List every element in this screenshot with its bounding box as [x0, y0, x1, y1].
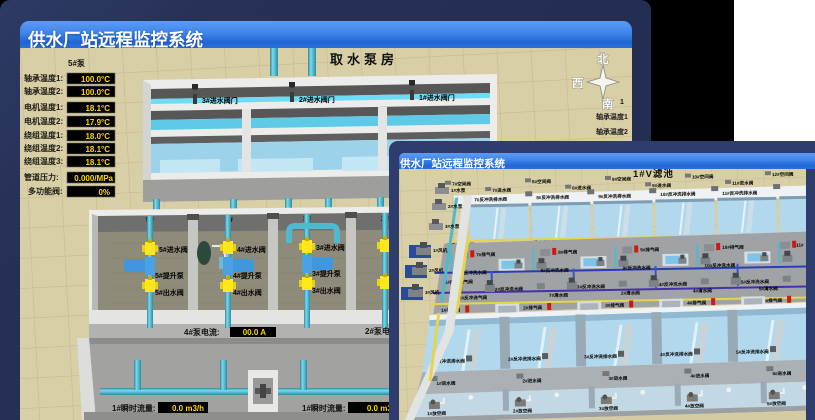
svg-text:电机温度1:: 电机温度1:	[24, 102, 63, 112]
svg-text:5#泵: 5#泵	[68, 59, 85, 68]
svg-text:100.0°C: 100.0°C	[81, 88, 110, 97]
svg-text:3#进水阀: 3#进水阀	[316, 243, 345, 252]
svg-text:管道压力:: 管道压力:	[24, 172, 59, 182]
svg-text:3#进水阀门: 3#进水阀门	[202, 96, 238, 105]
svg-text:西: 西	[572, 77, 584, 90]
svg-text:北: 北	[597, 52, 609, 66]
svg-text:3#风机: 3#风机	[425, 289, 440, 296]
svg-text:100.0°C: 100.0°C	[81, 75, 110, 84]
svg-text:轴承温度2: 轴承温度2	[596, 127, 628, 136]
svg-text:18.0°C: 18.0°C	[85, 132, 110, 141]
svg-text:0.000/MPa: 0.000/MPa	[74, 174, 113, 183]
svg-text:5#提升泵: 5#提升泵	[155, 271, 184, 280]
svg-text:1#风机: 1#风机	[433, 247, 448, 254]
svg-text:17.9°C: 17.9°C	[85, 118, 110, 127]
svg-text:3#提升泵: 3#提升泵	[312, 269, 341, 278]
svg-text:11#: 11#	[796, 243, 804, 248]
svg-text:18.1°C: 18.1°C	[85, 145, 110, 154]
svg-text:绕组温度3:: 绕组温度3:	[24, 156, 63, 166]
svg-text:00.0 A: 00.0 A	[243, 328, 266, 337]
svg-text:5#出水阀: 5#出水阀	[155, 288, 184, 297]
svg-text:1#瞬时流量:: 1#瞬时流量:	[112, 403, 156, 413]
svg-text:0.0 m3/h: 0.0 m3/h	[172, 404, 204, 413]
svg-text:18.1°C: 18.1°C	[85, 104, 110, 113]
svg-text:4#出水阀: 4#出水阀	[233, 288, 262, 297]
svg-text:3#水泵: 3#水泵	[445, 223, 460, 230]
svg-text:绕组温度2:: 绕组温度2:	[24, 143, 63, 153]
svg-text:18.1°C: 18.1°C	[85, 158, 110, 167]
svg-text:5#进水阀: 5#进水阀	[159, 245, 188, 254]
svg-text:4#进水阀: 4#进水阀	[237, 245, 266, 254]
svg-text:轴承温度1:: 轴承温度1:	[24, 73, 63, 83]
svg-text:2#水泵: 2#水泵	[448, 203, 463, 210]
svg-text:4#提升泵: 4#提升泵	[233, 271, 262, 280]
svg-text:1#瞬时流量:: 1#瞬时流量:	[302, 403, 346, 413]
svg-text:1#V滤池: 1#V滤池	[633, 169, 674, 180]
svg-text:绕组温度1:: 绕组温度1:	[24, 130, 63, 140]
svg-text:电机温度2:: 电机温度2:	[24, 116, 63, 126]
svg-text:3#出水阀: 3#出水阀	[312, 286, 341, 295]
svg-text:1: 1	[620, 99, 624, 106]
svg-text:0%: 0%	[98, 188, 110, 197]
svg-text:轴承温度2:: 轴承温度2:	[24, 86, 63, 96]
svg-text:4#泵电流:: 4#泵电流:	[184, 327, 220, 337]
svg-text:多功能阀:: 多功能阀:	[28, 186, 63, 196]
svg-text:轴承温度1: 轴承温度1	[596, 112, 628, 121]
svg-text:取水泵房: 取水泵房	[330, 52, 398, 67]
svg-text:南: 南	[602, 97, 614, 111]
svg-text:1#水泵: 1#水泵	[451, 187, 466, 194]
svg-text:1#进水阀门: 1#进水阀门	[419, 93, 455, 102]
svg-text:2#进水阀门: 2#进水阀门	[299, 95, 335, 104]
svg-text:2#风机: 2#风机	[429, 267, 444, 274]
